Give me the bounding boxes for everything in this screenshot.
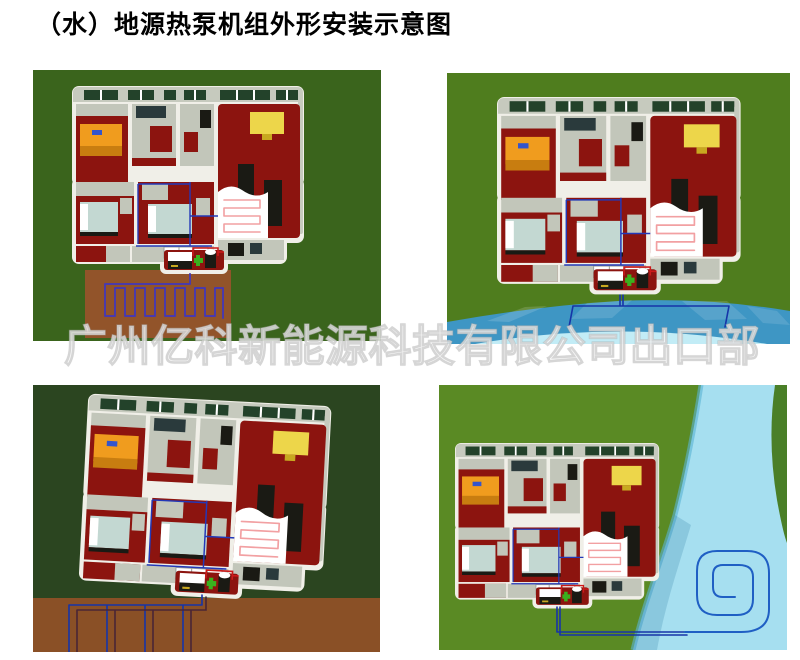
illustration-river-coil-loop xyxy=(439,385,787,650)
illustration-vertical-ground-loop xyxy=(33,385,380,652)
panel-vertical-ground-loop xyxy=(33,385,380,652)
soil-trench xyxy=(85,270,231,338)
panel-horizontal-ground-loop xyxy=(33,70,381,341)
page: （水）地源热泵机组外形安装示意图 xyxy=(0,0,800,660)
panel-pond-loop xyxy=(447,73,790,344)
page-title: （水）地源热泵机组外形安装示意图 xyxy=(36,5,452,41)
illustration-pond-loop xyxy=(447,73,790,344)
illustration-horizontal-ground-loop xyxy=(33,70,381,341)
panel-river-coil-loop xyxy=(439,385,787,650)
